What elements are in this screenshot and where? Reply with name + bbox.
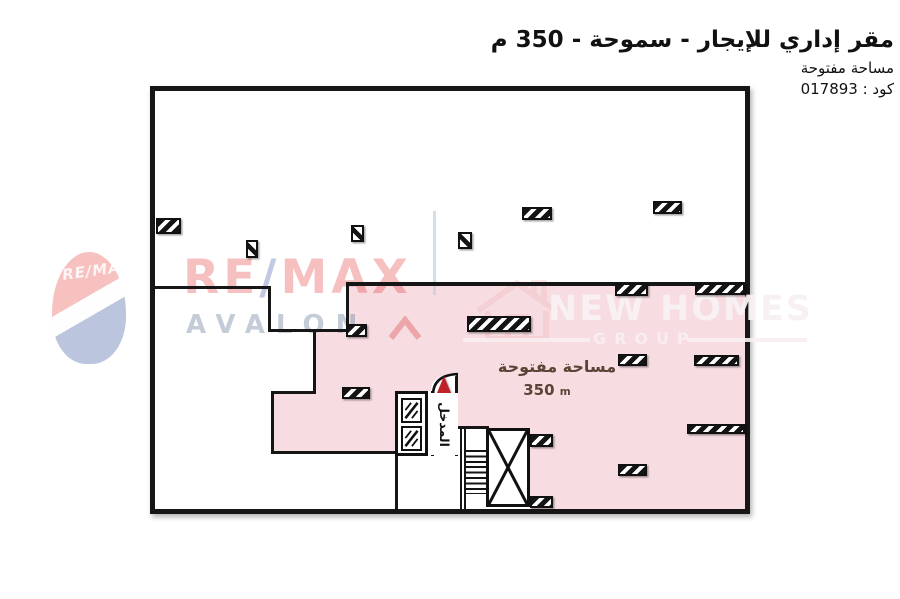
open-space-label: مساحة مفتوحة <box>486 357 628 376</box>
floor-plan-linework: المدخل مساحة مفتوحة 350 m <box>155 91 745 509</box>
elevator-box <box>395 391 428 456</box>
page-subtitle: مساحة مفتوحة <box>801 59 894 77</box>
elevator-cell-icon <box>401 426 422 451</box>
column-hatched <box>467 316 531 332</box>
wall-segment <box>155 286 270 289</box>
column-hatched <box>342 387 370 399</box>
column-hatched <box>618 354 647 366</box>
area-unit: m <box>560 386 571 398</box>
column-hatched <box>351 225 364 242</box>
column-hatched <box>522 207 552 220</box>
column-hatched <box>615 283 648 296</box>
column-hatched <box>156 218 181 234</box>
listing-code: كود : 017893 <box>801 80 894 98</box>
column-hatched <box>653 201 682 214</box>
remax-balloon-text: RE/MA <box>61 258 122 284</box>
column-hatched <box>695 283 745 295</box>
column-hatched <box>694 355 739 366</box>
column-hatched <box>687 424 745 434</box>
entrance-label: المدخل <box>431 393 458 455</box>
wall-segment <box>268 329 348 332</box>
column-hatched <box>530 496 553 508</box>
entrance-label-text: المدخل <box>437 402 452 447</box>
wall-segment <box>271 391 274 454</box>
screenshot-root: RE/MA RE/MAX AVALON NEW HOMES GROUP <box>0 0 900 599</box>
stair-void-box <box>486 428 530 507</box>
wall-segment <box>313 329 316 394</box>
column-hatched <box>530 434 553 447</box>
entrance-arrow-icon <box>437 376 451 393</box>
column-hatched <box>246 240 258 258</box>
wall-segment <box>271 391 316 394</box>
column-hatched <box>346 324 367 337</box>
stairs-treads <box>464 450 486 494</box>
wall-segment <box>455 426 489 429</box>
page-title: مقر إداري للإيجار - سموحة - 350 م <box>491 27 894 53</box>
column-hatched <box>618 464 647 476</box>
area-value: 350 <box>523 381 554 399</box>
remax-balloon-logo <box>52 252 126 364</box>
column-hatched <box>458 232 472 249</box>
x-cross-icon <box>489 431 527 504</box>
elevator-cell-icon <box>401 398 422 423</box>
area-label: 350 m <box>486 381 608 399</box>
wall-segment <box>268 286 271 332</box>
wall-segment <box>460 428 462 509</box>
wall-segment <box>271 451 398 454</box>
wall-segment <box>346 282 745 286</box>
